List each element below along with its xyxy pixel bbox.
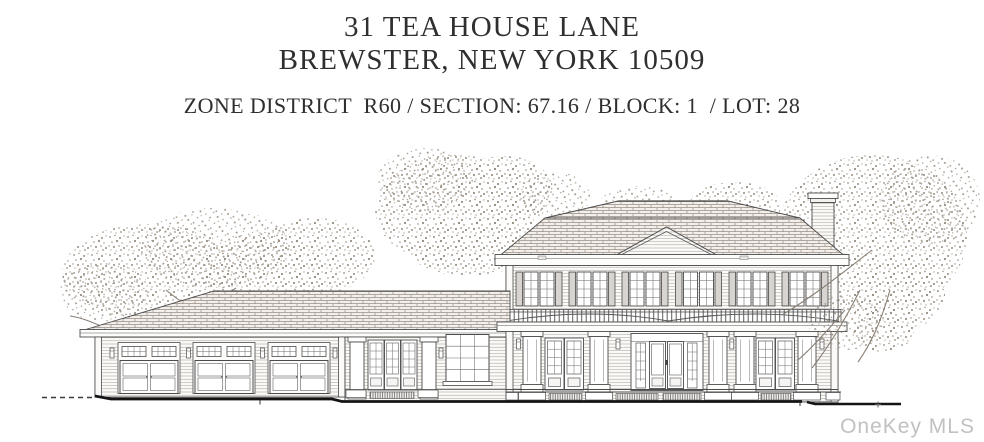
garage-wing <box>95 337 345 397</box>
garage-bay-2 <box>193 343 255 394</box>
watermark: OneKey MLS <box>840 415 975 439</box>
connector-wing <box>345 335 506 403</box>
address-line-1: 31 TEA HOUSE LANE <box>0 11 984 44</box>
main-first-floor <box>503 332 841 403</box>
porch-balustrade <box>503 310 841 323</box>
main-eave-fascia <box>495 255 849 266</box>
zoning-info-line: ZONE DISTRICT R60 / SECTION: 67.16 / BLO… <box>0 93 984 119</box>
second-floor <box>506 266 838 312</box>
porch-fascia <box>497 322 847 332</box>
listing-image: 31 TEA HOUSE LANE BREWSTER, NEW YORK 105… <box>0 0 984 442</box>
connector-french-doors <box>368 340 417 390</box>
address-line-2: BREWSTER, NEW YORK 10509 <box>0 44 984 77</box>
entry-door <box>631 334 703 391</box>
garage-bay-1 <box>118 343 180 394</box>
connector-window <box>443 335 492 386</box>
garage-bay-3 <box>268 343 330 394</box>
title-block: 31 TEA HOUSE LANE BREWSTER, NEW YORK 105… <box>0 11 984 119</box>
